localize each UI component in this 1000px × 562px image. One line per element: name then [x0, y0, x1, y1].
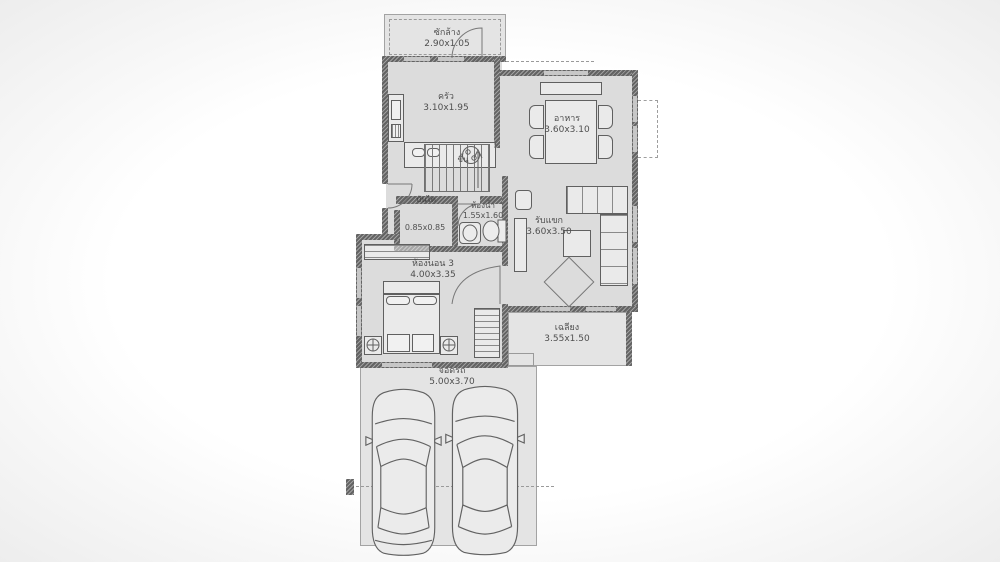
- understair-dim: 0.85x0.85: [405, 223, 445, 233]
- sofa-right-section: [600, 214, 628, 286]
- nightstand-right: [440, 336, 458, 355]
- label-carport: จอดรถ 5.00x3.70: [429, 366, 474, 389]
- wall-understair-bath-divider: [452, 204, 458, 252]
- bedroom-door-gap-floor: [502, 266, 508, 304]
- roof-overhang-line: [506, 61, 594, 62]
- carport-floor: [360, 366, 537, 546]
- carport-dim: 5.00x3.70: [429, 377, 474, 388]
- dining-chair-1: [529, 105, 544, 129]
- wall-kitchen-dining-divider: [494, 56, 500, 148]
- window-living-terrace-1: [540, 307, 570, 311]
- dining-sideboard: [540, 82, 602, 95]
- window-living-right-1: [633, 206, 637, 242]
- terrace-dim: 3.55x1.50: [544, 334, 589, 345]
- carport-post: [346, 479, 354, 495]
- label-terrace: เฉลียง 3.55x1.50: [544, 323, 589, 346]
- bed-blanket-1: [387, 334, 410, 352]
- window-bedroom-bottom: [382, 363, 432, 367]
- kitchen-sink-basin: [391, 100, 401, 120]
- sofa-top-section: [566, 186, 628, 214]
- window-dining-right-1: [633, 96, 637, 122]
- bedroom3-dim: 4.00x3.35: [410, 270, 455, 281]
- window-dining-top: [544, 71, 588, 75]
- wall-living-west-upper: [502, 176, 508, 266]
- bed-pillow-2: [413, 296, 437, 305]
- bathroom-vanity: [459, 222, 481, 244]
- wall-living-terrace: [508, 306, 638, 312]
- dining-name: อาหาร: [544, 114, 589, 125]
- bedroom-dresser: [364, 244, 430, 260]
- label-understair-dim: 0.85x0.85: [405, 223, 445, 233]
- bed-pillow-1: [386, 296, 410, 305]
- armchair: [515, 190, 532, 210]
- carport-name: จอดรถ: [429, 366, 474, 377]
- label-dining: อาหาร 3.60x3.10: [544, 114, 589, 137]
- bathroom-name: ห้องน้ำ: [463, 201, 503, 211]
- window-bedroom-left-1: [357, 268, 361, 298]
- bedroom-closet: [474, 308, 500, 358]
- kitchen-name: ครัว: [423, 92, 468, 103]
- label-understair-name: บันได: [416, 195, 436, 205]
- stairs-up-text: ขึ้น: [458, 155, 469, 165]
- bathroom-dim: 1.55x1.60: [463, 211, 503, 221]
- dining-chair-3: [598, 105, 613, 129]
- bed-headboard: [383, 281, 440, 294]
- wall-bedroom-top: [356, 234, 400, 240]
- laundry-dim: 2.90x1.05: [424, 39, 469, 50]
- label-stairs-up: ขึ้น: [458, 155, 469, 165]
- label-laundry: ซักล้าง 2.90x1.05: [424, 28, 469, 51]
- kitchen-drain-rack: [391, 124, 401, 138]
- tv-console: [514, 218, 527, 272]
- bedroom3-name: ห้องนอน 3: [410, 259, 455, 270]
- wall-bedroom-left: [356, 234, 362, 368]
- window-living-right-2: [633, 248, 637, 284]
- wall-terrace-right: [626, 312, 632, 366]
- understair-name: บันได: [416, 195, 436, 205]
- window-living-terrace-2: [586, 307, 616, 311]
- window-projection-bracket: [638, 100, 658, 158]
- label-kitchen: ครัว 3.10x1.95: [423, 92, 468, 115]
- label-bathroom: ห้องน้ำ 1.55x1.60: [463, 201, 503, 221]
- dining-chair-4: [598, 135, 613, 159]
- label-bedroom3: ห้องนอน 3 4.00x3.35: [410, 259, 455, 282]
- window-kitchen-top-1: [404, 57, 430, 61]
- window-dining-right-2: [633, 126, 637, 152]
- window-bedroom-left-2: [357, 306, 361, 336]
- bed-blanket-2: [412, 334, 434, 352]
- window-kitchen-top-2: [438, 57, 464, 61]
- kitchen-dim: 3.10x1.95: [423, 103, 468, 114]
- staircase: [424, 144, 490, 192]
- nightstand-left: [364, 336, 382, 355]
- terrace-name: เฉลียง: [544, 323, 589, 334]
- living-dim: 3.60x3.50: [526, 227, 571, 238]
- dining-dim: 3.60x3.10: [544, 125, 589, 136]
- living-name: รับแขก: [526, 216, 571, 227]
- carport-roof-line: [346, 486, 554, 487]
- terrace-step: [508, 353, 534, 366]
- floor-plan: ซักล้าง 2.90x1.05 ครัว 3.10x1.95 อาหาร 3…: [0, 0, 1000, 562]
- label-living: รับแขก 3.60x3.50: [526, 216, 571, 239]
- dining-chair-2: [529, 135, 544, 159]
- laundry-name: ซักล้าง: [424, 28, 469, 39]
